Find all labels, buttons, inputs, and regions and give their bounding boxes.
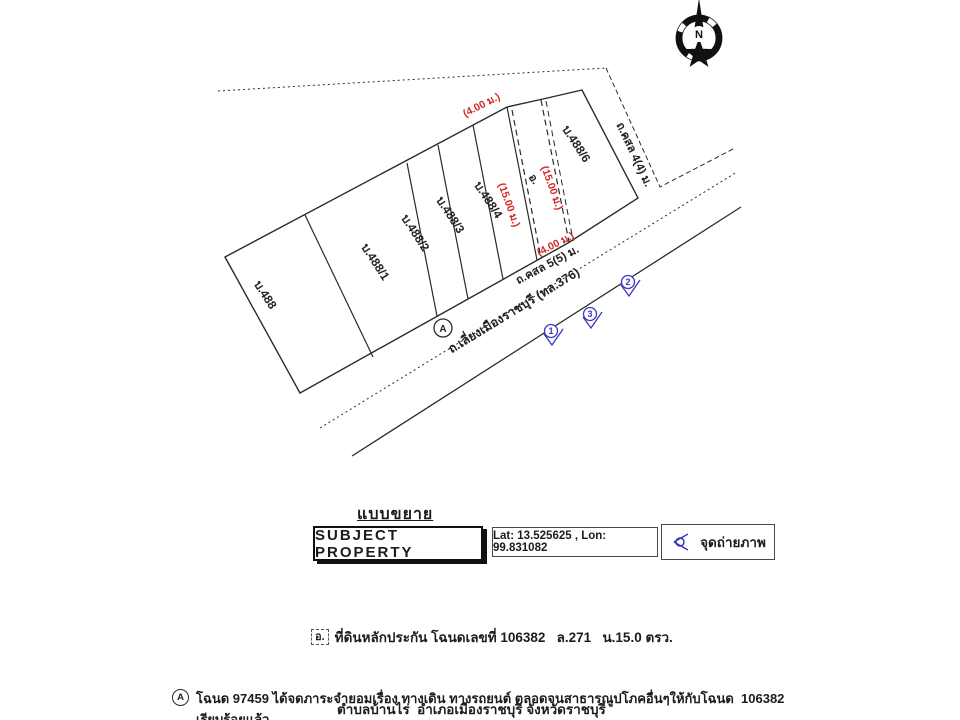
subject-note-text1: ที่ดินหลักประกัน โฉนดเลขที่ 106382 ล.271… [335, 630, 673, 645]
servitude-marker-letter: A [439, 324, 446, 335]
photo-point-2-number: 2 [625, 277, 630, 287]
legend-title: แบบขยาย [357, 502, 433, 527]
photo-point-1-number: 1 [548, 326, 553, 336]
compass-rose: N [672, 0, 725, 67]
photo-point-label: จุดถ่ายภาพ [700, 531, 766, 553]
servitude-note-marker: A [172, 689, 189, 706]
plot-label-488: บ.488 [251, 278, 280, 312]
photo-point-marker-2: 2 [621, 276, 640, 297]
photo-point-icon [670, 530, 694, 554]
photo-point-3-number: 3 [587, 309, 592, 319]
subject-plot-label: อ. [526, 172, 541, 187]
subject-note-marker: อ. [311, 629, 329, 645]
plot-divider-488-488-1 [305, 215, 373, 357]
servitude-note: A โฉนด 97459 ได้จดภาระจำยอมเรื่อง ทางเดิ… [172, 688, 812, 720]
servitude-note-text: โฉนด 97459 ได้จดภาระจำยอมเรื่อง ทางเดิน … [196, 688, 812, 720]
subject-west-dashed-line [512, 110, 541, 258]
photo-point-legend-box: จุดถ่ายภาพ [661, 524, 775, 560]
subject-property-box: SUBJECT PROPERTY [313, 526, 483, 561]
plot-label-488-6: บ.488/6 [559, 123, 593, 165]
compass-north-label: N [695, 29, 703, 41]
servitude-marker-a: A [434, 319, 452, 337]
compass-star [684, 38, 714, 67]
photo-point-marker-3: 3 [583, 308, 602, 329]
subject-property-label: SUBJECT PROPERTY [315, 527, 481, 561]
coordinates-box: Lat: 13.525625 , Lon: 99.831082 [492, 527, 658, 557]
north-boundary-dotted-line [218, 68, 606, 91]
photo-point-marker-1: 1 [544, 325, 563, 346]
plot-label-488-3: บ.488/3 [433, 194, 467, 236]
dimension-east-side: (15.00 ม.) [538, 164, 565, 211]
coordinates-value: Lat: 13.525625 , Lon: 99.831082 [493, 530, 657, 554]
dimension-top-width: (4.00 ม.) [461, 91, 502, 120]
plot-label-488-1: บ.488/1 [358, 241, 392, 283]
subject-note-line1: อ.ที่ดินหลักประกัน โฉนดเลขที่ 106382 ล.2… [311, 626, 731, 650]
survey-sheet: บ.488 บ.488/1 บ.488/2 บ.488/3 บ.488/4 บ.… [0, 0, 960, 720]
plot-label-488-2: บ.488/2 [398, 212, 432, 254]
road-label-concrete-4m: ถ.คสล 4(4) ม. [614, 121, 654, 189]
